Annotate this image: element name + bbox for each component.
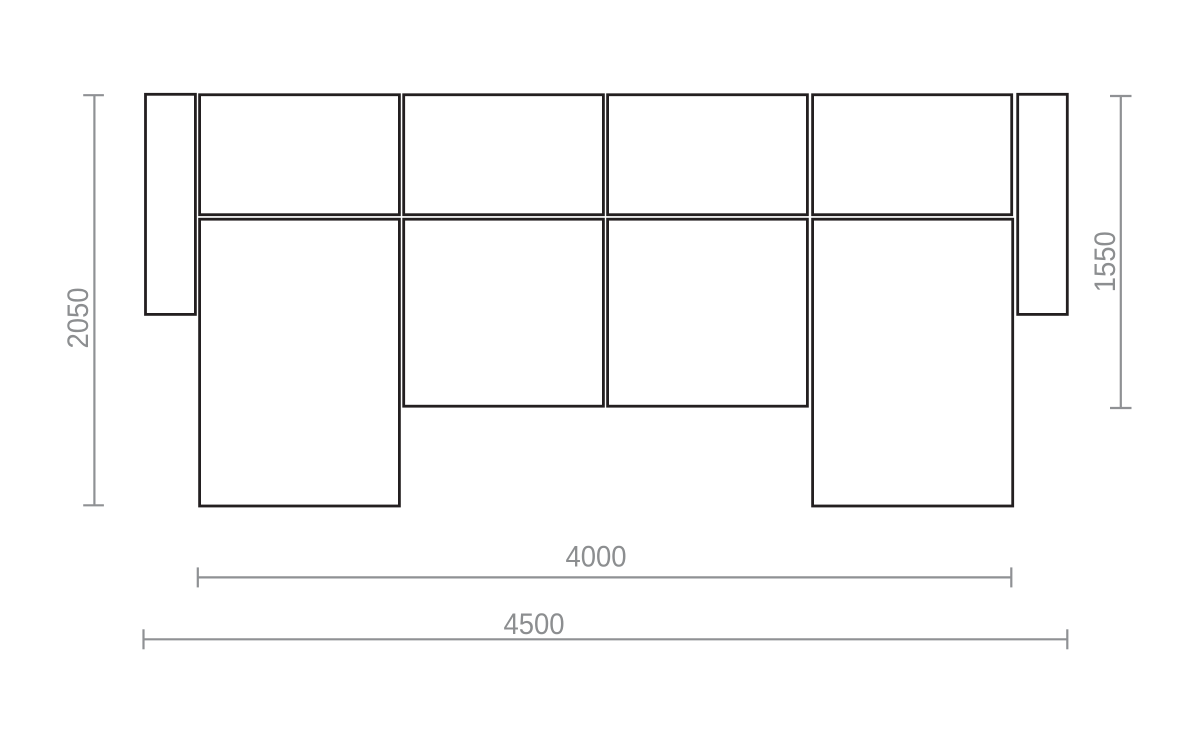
svg-text:1550: 1550 [1089,231,1122,292]
svg-text:4000: 4000 [566,541,627,574]
svg-text:4500: 4500 [504,608,565,641]
svg-text:2050: 2050 [62,288,95,349]
